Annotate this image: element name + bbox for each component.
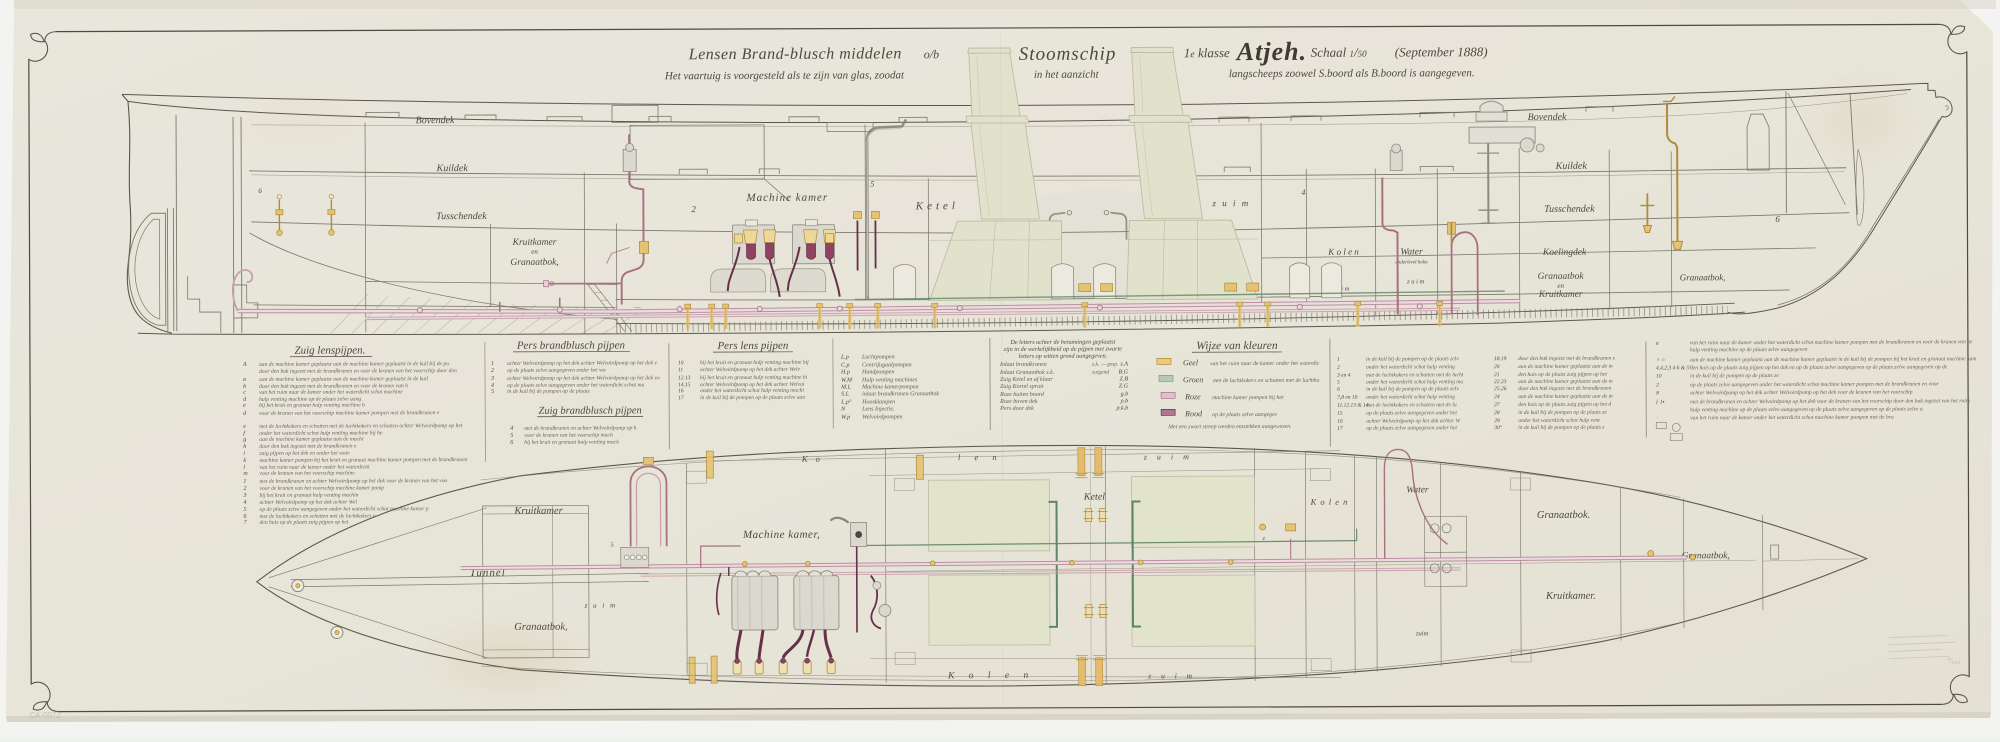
svg-text:op de plaats zelve aangegeven: op de plaats zelve aangegeven onder het	[1366, 410, 1457, 416]
svg-text:machine kamer pompen bij het k: machine kamer pompen bij het kruit en gr…	[259, 457, 467, 464]
svg-text:25.26: 25.26	[1494, 386, 1507, 392]
svg-text:♂ ○: ♂ ○	[1656, 357, 1665, 363]
svg-text:S.L: S.L	[841, 392, 850, 398]
svg-text:bij het kruit en granaat hulp: bij het kruit en granaat hulp venting ma…	[524, 439, 619, 445]
svg-text:8: 8	[1656, 390, 1659, 396]
svg-text:1: 1	[1337, 357, 1340, 363]
svg-text:op de plaats zelve aangegeven: op de plaats zelve aangegeven onder het …	[507, 368, 606, 374]
svg-text:den huis op de plaats zuig pij: den huis op de plaats zuig pijpen op het	[260, 520, 349, 526]
svg-text:C.p: C.p	[841, 363, 850, 369]
svg-text:4: 4	[1301, 188, 1305, 197]
svg-text:Tusschendek: Tusschendek	[1544, 204, 1595, 215]
svg-text:Z.B: Z.B	[1120, 377, 1129, 383]
svg-text:met de luchtkokers en schotten: met de luchtkokers en schotten met de lu	[1366, 402, 1457, 408]
svg-text:e: e	[243, 424, 246, 430]
svg-text:g: g	[243, 437, 246, 443]
svg-text:met de luchtkokers en schotten: met de luchtkokers en schotten met de lu…	[259, 423, 463, 430]
svg-text:2: 2	[1656, 382, 1659, 388]
svg-text:van het ruim naar de kamer ond: van het ruim naar de kamer onder het wat…	[1690, 339, 1973, 346]
svg-text:z.k. — gesp.: z.k. — gesp.	[1091, 362, 1118, 368]
svg-text:Granaatbok,: Granaatbok,	[510, 258, 558, 268]
svg-text:den huis op de plaats zuig pij: den huis op de plaats zuig pijpen op het…	[1690, 364, 1948, 371]
svg-text:3: 3	[242, 493, 246, 499]
svg-text:11.12.13 & 14: 11.12.13 & 14	[1337, 402, 1369, 409]
svg-text:18.19: 18.19	[1494, 356, 1507, 362]
svg-text:in de kuil bij de pompen op de: in de kuil bij de pompen op de plaats ze	[1690, 373, 1779, 379]
svg-text:inlaat brandkranen Granaatbok: inlaat brandkranen Granaatbok	[862, 391, 939, 397]
svg-text:Zuig Kortel spruit: Zuig Kortel spruit	[1000, 384, 1044, 390]
svg-text:in de kuil bij de pompen op de: in de kuil bij de pompen op de plaats ze	[1518, 410, 1607, 416]
svg-text:achter Welvoirdpomp op het dek: achter Welvoirdpomp op het dek achter We…	[700, 367, 801, 373]
svg-text:Geel: Geel	[1183, 358, 1199, 367]
svg-text:onder het waterdicht schot hul: onder het waterdicht schot hulp venting	[1366, 394, 1455, 400]
svg-text:W.M: W.M	[841, 378, 853, 384]
svg-text:{ 1▪: { 1▪	[1656, 399, 1664, 405]
svg-text:Bovendek: Bovendek	[1528, 112, 1567, 123]
svg-text:Rood: Rood	[1184, 409, 1203, 418]
svg-text:K o l e n: K o l e n	[1310, 497, 1349, 507]
svg-text:2: 2	[491, 368, 494, 374]
svg-text:met de luchtkokers en schotten: met de luchtkokers en schotten met de lu…	[1366, 372, 1464, 378]
svg-text:K o l e n: K o l e n	[947, 671, 1034, 681]
svg-text:A: A	[242, 362, 247, 368]
svg-text:en: en	[1557, 282, 1564, 290]
svg-text:h: h	[243, 444, 246, 450]
svg-text:H.p: H.p	[840, 370, 850, 376]
svg-text:Roze: Roze	[1184, 392, 1201, 401]
svg-text:16: 16	[678, 388, 684, 394]
svg-text:Pers door dek: Pers door dek	[999, 406, 1034, 412]
svg-text:2: 2	[1337, 365, 1340, 371]
svg-text:Met een zwart streep werden en: Met een zwart streep werden entstekken a…	[1167, 424, 1291, 430]
svg-text:Lens Injectie,: Lens Injectie,	[861, 406, 895, 412]
svg-text:Stoomschip: Stoomschip	[1019, 44, 1117, 65]
svg-text:M.L: M.L	[840, 385, 852, 391]
svg-text:5: 5	[491, 389, 494, 395]
svg-text:Inlaat brandkranen: Inlaat brandkranen	[999, 362, 1047, 368]
svg-text:K o l e n: K o l e n	[1327, 247, 1359, 257]
svg-text:15: 15	[1337, 411, 1343, 417]
svg-text:op de plaats zelve aangegev: op de plaats zelve aangegev	[1212, 412, 1277, 418]
svg-text:2: 2	[243, 486, 246, 492]
svg-text:onder het waterdicht schot hul: onder het waterdicht schot hulp venting …	[700, 388, 804, 394]
svg-text:21: 21	[1494, 372, 1500, 378]
svg-text:aan de machine kamer geplaatst: aan de machine kamer geplaatst aan de m	[1518, 379, 1613, 385]
svg-text:Pers brandblusch pijpen: Pers brandblusch pijpen	[516, 339, 626, 351]
svg-text:Ketel: Ketel	[915, 200, 959, 212]
svg-text:4: 4	[243, 499, 246, 506]
svg-text:bij het kruit en granaat hulp: bij het kruit en granaat hulp venting ma…	[259, 492, 358, 498]
svg-text:4: 4	[510, 425, 513, 432]
svg-text:Granaatbok.: Granaatbok.	[1537, 510, 1590, 521]
svg-text:14.15: 14.15	[678, 381, 691, 388]
svg-text:Kruitkamer: Kruitkamer	[1538, 290, 1583, 300]
svg-text:10: 10	[678, 360, 684, 366]
svg-text:5: 5	[1337, 380, 1340, 386]
svg-text:17: 17	[678, 395, 684, 401]
svg-text:Groen: Groen	[1183, 375, 1203, 384]
svg-text:5: 5	[611, 542, 614, 548]
svg-text:onderlevel holte: onderlevel holte	[1395, 260, 1428, 265]
svg-text:3: 3	[490, 376, 494, 382]
svg-text:L.p: L.p	[840, 355, 849, 361]
svg-text:aan de machine kamer geplaatst: aan de machine kamer geplaatst aan de ma…	[259, 436, 364, 442]
svg-text:door den bak ingezet met de br: door den bak ingezet met de brandkranen …	[1518, 356, 1616, 362]
svg-text:L.p°: L.p°	[840, 399, 852, 406]
svg-text:e: e	[243, 403, 246, 409]
svg-text:Handpompen: Handpompen	[861, 369, 894, 375]
svg-text:l e n: l e n	[958, 452, 1003, 462]
svg-text:bij het kruit en granaat hulp: bij het kruit en granaat hulp venting ma…	[259, 402, 365, 408]
svg-text:1: 1	[243, 479, 246, 485]
svg-text:Zuig Ketel en af klaar: Zuig Ketel en af klaar	[1000, 376, 1053, 383]
svg-text:in de kuil bij de pompen op de: in de kuil bij de pompen op de plaats	[507, 389, 590, 395]
svg-text:machine kamer pompen bij het: machine kamer pompen bij het	[1212, 395, 1284, 401]
svg-text:K o: K o	[801, 454, 823, 464]
svg-text:met de brandkranen en achter W: met de brandkranen en achter Welvoirdpom…	[1690, 398, 1970, 405]
svg-text:10: 10	[1656, 373, 1662, 379]
svg-text:langscheeps zoowel S.boord als: langscheeps zoowel S.boord als B.boord i…	[1229, 67, 1475, 80]
svg-text:a: a	[243, 377, 246, 383]
svg-text:Zuig lenspijpen.: Zuig lenspijpen.	[294, 344, 365, 356]
svg-text:6: 6	[510, 440, 513, 446]
svg-text:met de luchtkokers en schotten: met de luchtkokers en schotten met de lu…	[1213, 378, 1320, 384]
svg-text:achter Welvoirdpomp op het dek: achter Welvoirdpomp op het dek achter We…	[259, 499, 357, 505]
svg-text:Roze buiten boord: Roze buiten boord	[999, 392, 1045, 398]
svg-text:hulp venting machine op de pla: hulp venting machine op de plaats zelve …	[1690, 347, 1808, 353]
svg-text:⁴/₆₆₉: ⁴/₆₆₉	[1947, 655, 1961, 664]
svg-text:5: 5	[870, 179, 874, 188]
svg-text:17: 17	[1337, 426, 1343, 432]
svg-text:Machine kamer,: Machine kamer,	[742, 529, 820, 541]
svg-text:door den bak ingezet met de br: door den bak ingezet met de brandkranen	[1518, 386, 1611, 392]
svg-text:Machine kamer: Machine kamer	[745, 192, 828, 204]
svg-text:2: 2	[691, 204, 696, 214]
svg-text:Hulp venting machines: Hulp venting machines	[861, 377, 918, 383]
svg-text:Kruitkamer: Kruitkamer	[512, 238, 557, 248]
svg-text:voor de kranen van het voorsch: voor de kranen van het voorschip machine…	[259, 485, 384, 491]
svg-text:m: m	[243, 471, 248, 477]
svg-text:z u i m: z u i m	[584, 601, 618, 609]
svg-text:zuigend: zuigend	[1091, 370, 1109, 376]
svg-text:30ª: 30ª	[1493, 425, 1502, 431]
svg-text:Koelingdek: Koelingdek	[1542, 248, 1587, 258]
svg-text:p.b: p.b	[1120, 399, 1129, 405]
svg-text:29: 29	[1494, 418, 1500, 424]
svg-text:aan de machine kamer geplaatst: aan de machine kamer geplaatst aan de m	[1518, 394, 1613, 400]
svg-text:CA-0072: CA-0072	[29, 711, 61, 720]
svg-text:c: c	[243, 390, 246, 396]
svg-text:op de plaats zelve aangegeven: op de plaats zelve aangegeven onder het …	[260, 506, 429, 513]
svg-text:aan de machine kamer geplaatst: aan de machine kamer geplaatst aan de ma…	[1690, 356, 1976, 363]
svg-text:en: en	[531, 248, 538, 256]
svg-text:van het ruim naar de kamer ond: van het ruim naar de kamer onder het wat…	[1690, 415, 1894, 422]
svg-text:3 en 4: 3 en 4	[1336, 372, 1351, 379]
svg-text:van het ruim naar de kamer ond: van het ruim naar de kamer onder het wat…	[1210, 361, 1320, 367]
svg-text:o/b: o/b	[924, 47, 939, 61]
svg-text:voor de kranen van het voorsch: voor de kranen van het voorschip machine…	[259, 410, 440, 417]
svg-text:16: 16	[1337, 419, 1343, 425]
svg-text:Machine kamerpompen: Machine kamerpompen	[861, 384, 919, 390]
svg-text:z u i m: z u i m	[1143, 452, 1193, 461]
svg-text:Roze boven dek: Roze boven dek	[999, 399, 1038, 405]
svg-text:a: a	[1656, 340, 1659, 346]
svg-text:4.4.2.3 4 6 & 5°: 4.4.2.3 4 6 & 5°	[1656, 364, 1692, 371]
svg-text:onder het waterdicht schot hul: onder het waterdicht schot hulp venting	[1366, 364, 1455, 370]
svg-text:6: 6	[258, 187, 262, 195]
svg-text:door den bak ingezet met de br: door den bak ingezet met de brandkranen …	[259, 368, 457, 375]
svg-text:achter Welvoirdpomp op het dek: achter Welvoirdpomp op het dek achter W	[1366, 418, 1461, 424]
svg-text:Zuig brandblusch pijpen: Zuig brandblusch pijpen	[539, 405, 642, 416]
svg-text:Centrifugaalpompen: Centrifugaalpompen	[862, 361, 912, 368]
svg-text:Water: Water	[1406, 485, 1429, 495]
svg-text:z u i m: z u i m	[1406, 278, 1424, 285]
svg-text:aan de machine kamer geplaatst: aan de machine kamer geplaatst aan de ma…	[259, 376, 428, 383]
svg-text:Pers lens pijpen: Pers lens pijpen	[716, 340, 788, 352]
svg-text:5: 5	[244, 507, 247, 513]
svg-text:onder het waterdicht schot hul: onder het waterdicht schot hulp venting …	[1366, 379, 1463, 385]
svg-text:28: 28	[1494, 410, 1500, 416]
svg-text:onder het waterdicht schot hul: onder het waterdicht schot hulp vent	[1518, 418, 1600, 424]
svg-text:W.p: W.p	[841, 415, 850, 421]
svg-text:op de plaats zelve aangegeven: op de plaats zelve aangegeven onder het	[1366, 425, 1457, 431]
svg-text:achter Welvoirdpomp op het dek: achter Welvoirdpomp op het dek achter We…	[507, 375, 660, 382]
svg-text:5: 5	[510, 433, 513, 439]
svg-text:g.b: g.b	[1121, 392, 1129, 398]
svg-text:11: 11	[678, 367, 683, 373]
svg-text:van het ruim naar de kamer ond: van het ruim naar de kamer onder het wat…	[259, 389, 403, 396]
svg-text:letters op witten grond aangeg: letters op witten grond aangegeven.	[1019, 353, 1108, 360]
svg-text:zuim: zuim	[1415, 630, 1429, 637]
svg-text:B.G: B.G	[1118, 370, 1128, 376]
svg-text:Luchtpompen: Luchtpompen	[861, 354, 895, 360]
svg-text:Lensen Brand-blusch middelen: Lensen Brand-blusch middelen	[688, 45, 902, 63]
svg-text:in de kuil bij de pompen op de: in de kuil bij de pompen op de plaats ze…	[1366, 356, 1459, 362]
svg-text:6: 6	[1337, 387, 1340, 393]
svg-text:Atjeh.: Atjeh.	[1235, 37, 1307, 66]
svg-text:in de kuil bij de pompen op de: in de kuil bij de pompen op de plaats ze…	[700, 395, 805, 401]
svg-text:Hoosklampen: Hoosklampen	[861, 399, 895, 405]
svg-text:in de kuil bij de pompen op de: in de kuil bij de pompen op de plaats ze…	[1366, 386, 1459, 392]
svg-text:Welvoirdpompen: Welvoirdpompen	[862, 414, 902, 420]
svg-text:aan de machine kamer geplaatst: aan de machine kamer geplaatst aan de ma…	[259, 361, 449, 368]
svg-text:p.k.b: p.k.b	[1115, 406, 1128, 412]
svg-text:in de kuil bij de pompen op de: in de kuil bij de pompen op de plaats z	[1518, 425, 1605, 431]
svg-text:den huis op de plaats zuig pij: den huis op de plaats zuig pijpen op het…	[1518, 402, 1611, 408]
svg-text:Kuildek: Kuildek	[436, 163, 469, 174]
svg-text:aan de machine kamer geplaatst: aan de machine kamer geplaatst aan de m	[1518, 364, 1613, 370]
svg-text:met de brandkranen en achter W: met de brandkranen en achter Welvoirdpom…	[259, 478, 447, 485]
svg-text:hulp venting machine op de pla: hulp venting machine op de plaats zelve …	[1690, 406, 1923, 413]
svg-text:1: 1	[491, 361, 494, 367]
svg-text:Granaatbok,: Granaatbok,	[1682, 551, 1730, 561]
svg-text:Granaatbok,: Granaatbok,	[514, 622, 567, 633]
svg-text:Bovendek: Bovendek	[416, 115, 455, 126]
svg-text:achter Welvoirdpomp op het dek: achter Welvoirdpomp op het dek achter We…	[1690, 389, 1913, 396]
svg-text:4: 4	[491, 382, 494, 389]
svg-text:op de plaats zelve aangegeven: op de plaats zelve aangegeven onder het …	[1690, 381, 1939, 388]
svg-text:zuig pijpen op het dek en onde: zuig pijpen op het dek en onder het wate	[258, 450, 350, 456]
svg-text:Het vaartuig is voorgesteld al: Het vaartuig is voorgesteld als te zijn …	[664, 69, 905, 82]
svg-text:voor de kranen van het voorsch: voor de kranen van het voorschip mach	[524, 432, 613, 438]
svg-text:door den bak ingezet met de br: door den bak ingezet met de brandkranen …	[259, 443, 357, 449]
svg-text:12.13: 12.13	[678, 375, 691, 381]
svg-text:Tusschendek: Tusschendek	[436, 211, 487, 222]
svg-text:(September 1888): (September 1888)	[1395, 44, 1488, 59]
svg-text:24: 24	[1494, 393, 1500, 400]
svg-text:Kruitkamer.: Kruitkamer.	[1545, 591, 1596, 602]
svg-text:Kruitkamer: Kruitkamer	[513, 506, 563, 517]
svg-text:bij het kruit en granaat hulp: bij het kruit en granaat hulp venting ma…	[700, 375, 808, 381]
svg-text:voor de kranen van het voorsch: voor de kranen van het voorschip machine	[259, 470, 355, 476]
svg-text:Z.G: Z.G	[1119, 384, 1129, 390]
svg-text:bij het kruit en granaat hulp: bij het kruit en granaat hulp venting ma…	[700, 360, 809, 366]
svg-text:z.A: z.A	[1119, 362, 1128, 368]
svg-text:Kuildek: Kuildek	[1555, 161, 1588, 172]
svg-text:Inlaat Granaatbok z.k.: Inlaat Granaatbok z.k.	[999, 370, 1054, 376]
svg-text:7,8 en 10: 7,8 en 10	[1337, 395, 1358, 401]
svg-text:Water: Water	[1400, 247, 1423, 257]
svg-text:20: 20	[1494, 364, 1500, 370]
svg-text:k: k	[243, 458, 246, 464]
svg-text:den huis op de plaats zuig pij: den huis op de plaats zuig pijpen op het	[1518, 372, 1607, 378]
svg-text:z u i m: z u i m	[1147, 671, 1196, 680]
svg-text:achter Welvoirdpomp op het dek: achter Welvoirdpomp op het dek achter We…	[507, 360, 657, 367]
svg-text:Ketel: Ketel	[1083, 492, 1105, 503]
svg-text:Granaatbok,: Granaatbok,	[1680, 272, 1726, 282]
svg-text:z u i m: z u i m	[1211, 198, 1250, 208]
svg-text:6: 6	[1775, 214, 1780, 224]
svg-text:27: 27	[1494, 402, 1500, 408]
svg-text:Wijze van kleuren: Wijze van kleuren	[1196, 340, 1278, 352]
svg-text:22.23: 22.23	[1494, 379, 1507, 385]
svg-text:Granaatbok: Granaatbok	[1538, 272, 1585, 282]
svg-text:met de brandkranen en achter W: met de brandkranen en achter Welvoirdpom…	[524, 425, 636, 431]
svg-text:in het aanzicht: in het aanzicht	[1034, 69, 1100, 81]
